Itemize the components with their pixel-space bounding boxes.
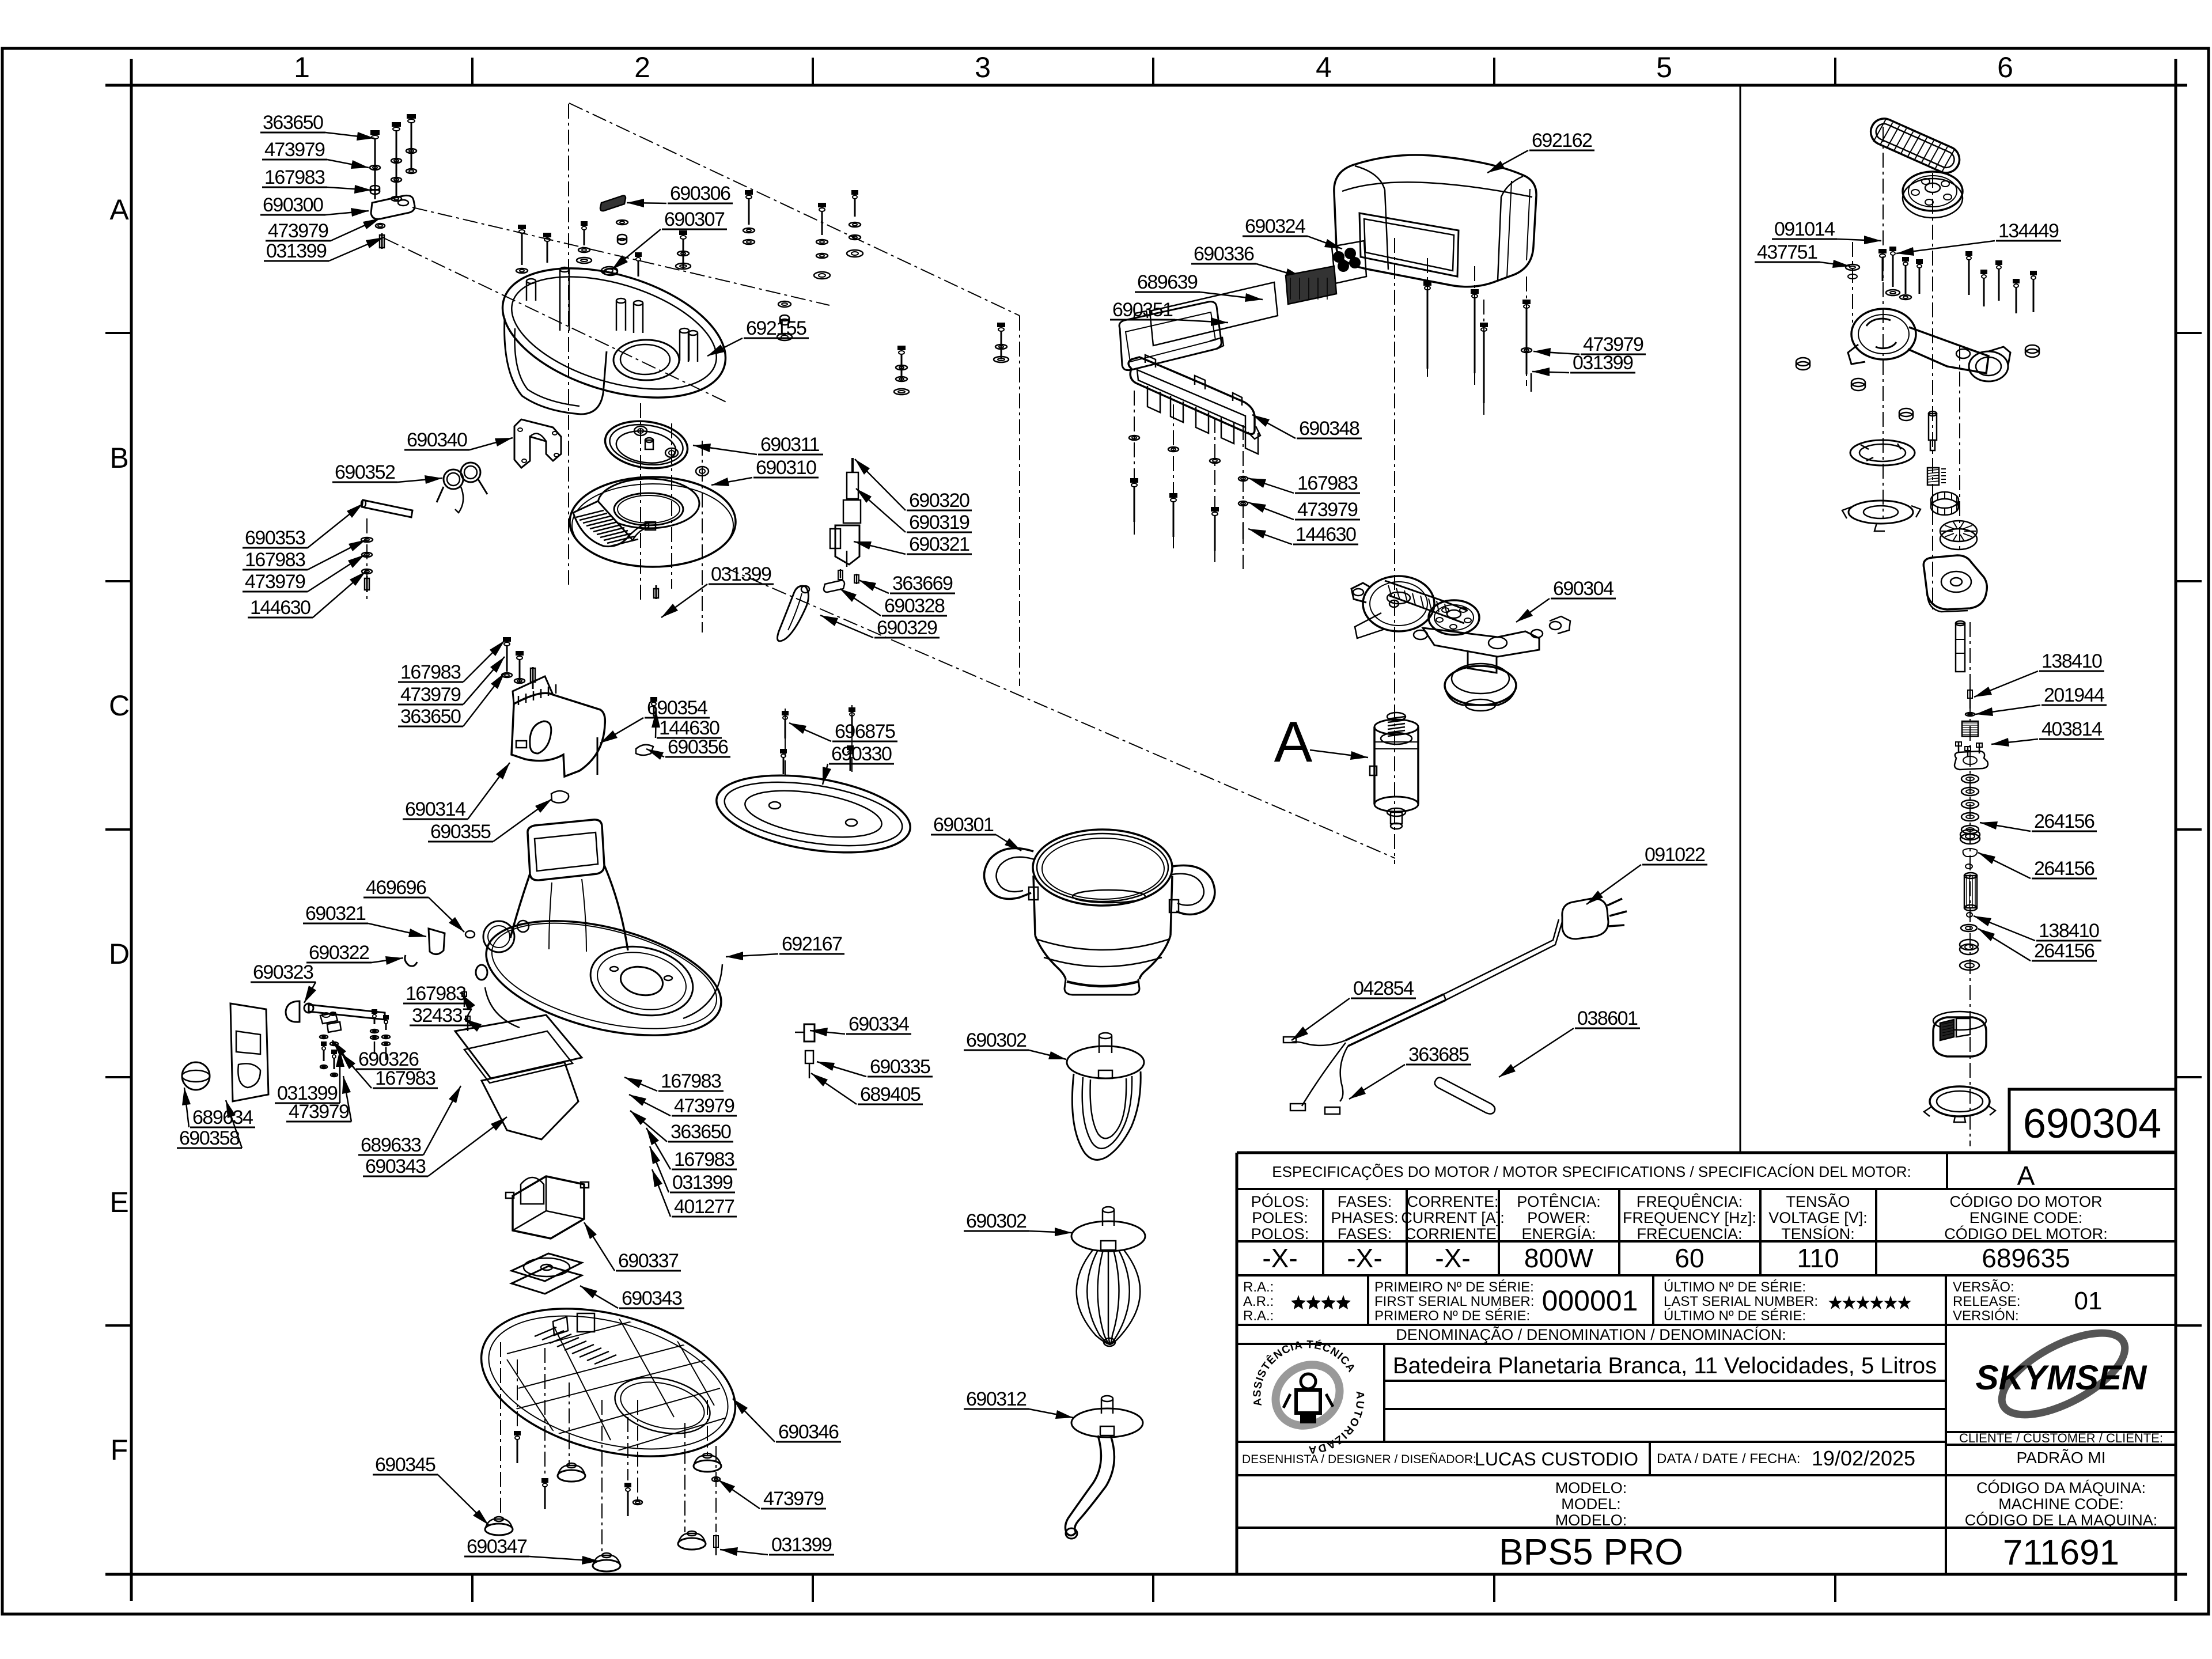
svg-text:ENGINE CODE:: ENGINE CODE:	[1969, 1209, 2083, 1226]
svg-text:F: F	[111, 1434, 128, 1466]
svg-text:SKYMSEN: SKYMSEN	[1976, 1358, 2147, 1397]
svg-text:690322: 690322	[309, 942, 369, 964]
svg-text:091014: 091014	[1774, 218, 1835, 240]
svg-text:473979: 473979	[289, 1101, 349, 1123]
svg-text:FRECUENCIA:: FRECUENCIA:	[1637, 1225, 1742, 1243]
svg-text:690345: 690345	[375, 1454, 435, 1476]
svg-text:01: 01	[2074, 1287, 2103, 1315]
svg-text:POLOS:: POLOS:	[1251, 1225, 1309, 1243]
svg-text:DESENHISTA / DESIGNER / DISEÑA: DESENHISTA / DESIGNER / DISEÑADOR:	[1242, 1452, 1476, 1466]
svg-text:690346: 690346	[778, 1421, 839, 1443]
svg-text:167983: 167983	[674, 1149, 734, 1171]
svg-text:690310: 690310	[756, 457, 816, 479]
svg-text:ESPECIFICAÇÕES DO MOTOR / MOTO: ESPECIFICAÇÕES DO MOTOR / MOTOR SPECIFIC…	[1272, 1163, 1911, 1180]
svg-text:401277: 401277	[674, 1196, 734, 1218]
svg-text:-X-: -X-	[1435, 1243, 1470, 1273]
svg-text:690300: 690300	[263, 194, 323, 216]
svg-text:CURRENT [A]:: CURRENT [A]:	[1401, 1209, 1505, 1226]
svg-text:A: A	[2017, 1161, 2035, 1191]
svg-text:POWER:: POWER:	[1527, 1209, 1590, 1226]
svg-text:138410: 138410	[2039, 920, 2099, 942]
svg-text:690314: 690314	[405, 798, 465, 820]
svg-text:E: E	[109, 1186, 128, 1218]
svg-text:FIRST SERIAL NUMBER:: FIRST SERIAL NUMBER:	[1374, 1294, 1534, 1309]
svg-text:PÓLOS:: PÓLOS:	[1251, 1192, 1309, 1210]
svg-text:690319: 690319	[909, 512, 969, 533]
svg-text:-X-: -X-	[1347, 1243, 1382, 1273]
svg-text:A: A	[109, 194, 129, 226]
svg-text:167983: 167983	[375, 1067, 435, 1089]
svg-text:403814: 403814	[2041, 718, 2102, 740]
svg-text:690343: 690343	[365, 1156, 426, 1177]
svg-text:690351: 690351	[1112, 299, 1173, 321]
svg-text:MODELO:: MODELO:	[1555, 1512, 1627, 1529]
svg-text:ÚLTIMO Nº DE SÉRIE:: ÚLTIMO Nº DE SÉRIE:	[1664, 1308, 1806, 1324]
svg-text:363650: 363650	[400, 706, 461, 728]
svg-text:FREQUENCY [Hz]:: FREQUENCY [Hz]:	[1623, 1209, 1756, 1226]
svg-text:138410: 138410	[2041, 650, 2102, 672]
svg-text:689639: 689639	[1137, 271, 1198, 293]
svg-text:690348: 690348	[1299, 418, 1359, 440]
svg-text:R.A.:: R.A.:	[1243, 1308, 1274, 1324]
svg-text:690304: 690304	[2023, 1101, 2161, 1147]
svg-text:FASES:: FASES:	[1338, 1193, 1392, 1210]
svg-text:690324: 690324	[1245, 215, 1305, 237]
svg-text:60: 60	[1675, 1243, 1704, 1273]
svg-text:469696: 469696	[366, 877, 426, 899]
svg-text:473979: 473979	[674, 1095, 734, 1117]
svg-text:690355: 690355	[430, 821, 491, 843]
svg-text:POTÊNCIA:: POTÊNCIA:	[1517, 1192, 1601, 1210]
svg-text:689634: 689634	[192, 1107, 253, 1128]
svg-text:690311: 690311	[760, 434, 820, 456]
svg-text:690337: 690337	[618, 1250, 679, 1272]
svg-text:473979: 473979	[763, 1488, 824, 1510]
svg-text:473979: 473979	[1297, 499, 1358, 521]
svg-text:690307: 690307	[664, 209, 725, 230]
svg-text:CORRIENTE:: CORRIENTE:	[1405, 1225, 1501, 1243]
svg-text:144630: 144630	[250, 597, 310, 619]
svg-text:473979: 473979	[400, 684, 461, 706]
svg-text:167983: 167983	[264, 166, 325, 188]
svg-text:690301: 690301	[933, 814, 994, 836]
svg-text:PRIMERO Nº DE SÉRIE:: PRIMERO Nº DE SÉRIE:	[1374, 1308, 1530, 1324]
svg-text:690321: 690321	[305, 903, 366, 925]
svg-text:690304: 690304	[1553, 578, 1613, 600]
svg-text:690329: 690329	[877, 617, 937, 639]
svg-text:690320: 690320	[909, 490, 969, 512]
svg-text:MODELO:: MODELO:	[1555, 1479, 1627, 1497]
svg-text:038601: 038601	[1577, 1007, 1638, 1029]
svg-text:363650: 363650	[263, 112, 323, 134]
svg-text:FASES:: FASES:	[1338, 1225, 1392, 1243]
svg-text:324337: 324337	[412, 1005, 472, 1027]
svg-text:PRIMEIRO Nº DE SÉRIE:: PRIMEIRO Nº DE SÉRIE:	[1374, 1279, 1534, 1295]
svg-text:CÓDIGO DEL MOTOR:: CÓDIGO DEL MOTOR:	[1944, 1225, 2108, 1243]
svg-text:264156: 264156	[2034, 940, 2094, 962]
svg-text:CORRENTE:: CORRENTE:	[1407, 1193, 1498, 1210]
svg-text:2: 2	[634, 51, 650, 84]
svg-text:4: 4	[1316, 51, 1332, 84]
svg-text:167983: 167983	[400, 661, 461, 683]
svg-text:5: 5	[1656, 51, 1672, 84]
svg-text:-X-: -X-	[1262, 1243, 1297, 1273]
svg-text:DENOMINAÇÃO / DENOMINATION / D: DENOMINAÇÃO / DENOMINATION / DENOMINACÍO…	[1396, 1325, 1786, 1343]
svg-text:690302: 690302	[966, 1210, 1027, 1232]
svg-text:POLES:: POLES:	[1252, 1209, 1308, 1226]
svg-text:D: D	[109, 938, 130, 970]
svg-text:CLIENTE / CUSTOMER / CLIENTE:: CLIENTE / CUSTOMER / CLIENTE:	[1959, 1431, 2163, 1445]
svg-text:696875: 696875	[835, 721, 895, 743]
svg-text:689405: 689405	[860, 1084, 921, 1105]
svg-text:3: 3	[975, 51, 991, 84]
svg-text:690302: 690302	[966, 1029, 1027, 1051]
svg-text:363650: 363650	[671, 1121, 731, 1143]
svg-text:690306: 690306	[670, 183, 730, 204]
svg-text:690328: 690328	[884, 595, 945, 617]
svg-text:Batedeira Planetaria Branca, 1: Batedeira Planetaria Branca, 11 Velocida…	[1393, 1353, 1937, 1378]
svg-text:690352: 690352	[335, 461, 395, 483]
svg-text:BPS5 PRO: BPS5 PRO	[1499, 1531, 1683, 1573]
svg-text:711691: 711691	[2003, 1533, 2119, 1573]
svg-text:690312: 690312	[966, 1388, 1027, 1410]
svg-text:692167: 692167	[782, 933, 842, 955]
svg-text:031399: 031399	[266, 240, 327, 262]
svg-text:167983: 167983	[661, 1070, 721, 1092]
svg-text:690323: 690323	[253, 961, 313, 983]
svg-text:690340: 690340	[407, 429, 467, 451]
svg-text:264156: 264156	[2034, 858, 2094, 880]
svg-text:RELEASE:: RELEASE:	[1953, 1294, 2020, 1309]
svg-text:MACHINE CODE:: MACHINE CODE:	[1998, 1495, 2124, 1513]
svg-text:TENSÃO: TENSÃO	[1786, 1192, 1850, 1210]
svg-text:473979: 473979	[264, 139, 325, 161]
svg-text:031399: 031399	[711, 563, 771, 585]
svg-text:TENSÍON:: TENSÍON:	[1781, 1225, 1855, 1243]
svg-text:134449: 134449	[1998, 220, 2059, 242]
svg-text:690353: 690353	[245, 527, 305, 549]
svg-text:690356: 690356	[668, 736, 728, 758]
svg-text:473979: 473979	[268, 220, 328, 242]
svg-text:LAST SERIAL NUMBER:: LAST SERIAL NUMBER:	[1664, 1294, 1818, 1309]
svg-text:LUCAS CUSTODIO: LUCAS CUSTODIO	[1475, 1449, 1638, 1469]
svg-text:CÓDIGO DA MÁQUINA:: CÓDIGO DA MÁQUINA:	[1976, 1479, 2146, 1497]
svg-text:110: 110	[1797, 1243, 1839, 1273]
svg-text:B: B	[109, 442, 128, 474]
svg-text:1: 1	[294, 51, 310, 84]
svg-text:692162: 692162	[1532, 130, 1592, 151]
svg-text:689633: 689633	[361, 1134, 421, 1156]
svg-text:000001: 000001	[1542, 1285, 1638, 1317]
svg-text:MODEL:: MODEL:	[1561, 1495, 1621, 1513]
svg-text:19/02/2025: 19/02/2025	[1812, 1446, 1915, 1470]
svg-text:264156: 264156	[2034, 810, 2094, 832]
svg-text:363669: 363669	[892, 573, 953, 594]
svg-text:690347: 690347	[467, 1536, 527, 1558]
svg-text:A: A	[1274, 710, 1313, 774]
svg-text:R.A.:: R.A.:	[1243, 1279, 1274, 1295]
svg-text:363685: 363685	[1408, 1044, 1469, 1066]
svg-text:042854: 042854	[1353, 978, 1414, 999]
svg-text:CÓDIGO DO MOTOR: CÓDIGO DO MOTOR	[1949, 1192, 2102, 1210]
svg-text:091022: 091022	[1645, 844, 1705, 866]
svg-text:437751: 437751	[1757, 241, 1817, 263]
svg-text:167983: 167983	[245, 549, 305, 571]
svg-text:ÚLTIMO Nº DE SÉRIE:: ÚLTIMO Nº DE SÉRIE:	[1664, 1279, 1806, 1295]
svg-text:031399: 031399	[672, 1172, 733, 1194]
svg-text:690335: 690335	[870, 1056, 930, 1078]
svg-text:690330: 690330	[831, 743, 892, 765]
svg-text:CÓDIGO DE LA MAQUINA:: CÓDIGO DE LA MAQUINA:	[1965, 1511, 2158, 1529]
svg-text:800W: 800W	[1524, 1243, 1594, 1273]
svg-text:689635: 689635	[1982, 1243, 2070, 1273]
svg-text:690336: 690336	[1194, 243, 1254, 265]
svg-text:031399: 031399	[771, 1534, 832, 1556]
svg-text:473979: 473979	[245, 571, 305, 593]
svg-text:167983: 167983	[406, 983, 466, 1005]
svg-text:VERSÃO:: VERSÃO:	[1953, 1279, 2014, 1295]
svg-text:A.R.:: A.R.:	[1243, 1294, 1274, 1309]
svg-text:VERSIÓN:: VERSIÓN:	[1953, 1308, 2019, 1324]
svg-text:FREQUÊNCIA:: FREQUÊNCIA:	[1637, 1192, 1743, 1210]
svg-text:DATA / DATE / FECHA:: DATA / DATE / FECHA:	[1657, 1451, 1800, 1467]
svg-text:6: 6	[1997, 51, 2013, 84]
svg-text:690321: 690321	[909, 533, 969, 555]
svg-text:167983: 167983	[1297, 472, 1358, 494]
svg-text:144630: 144630	[1296, 524, 1356, 546]
svg-text:PHASES:: PHASES:	[1331, 1209, 1398, 1226]
svg-text:ENERGÍA:: ENERGÍA:	[1521, 1225, 1596, 1243]
svg-text:690334: 690334	[849, 1013, 909, 1035]
svg-text:PADRÃO MI: PADRÃO MI	[2016, 1449, 2105, 1467]
svg-text:VOLTAGE [V]:: VOLTAGE [V]:	[1768, 1209, 1868, 1226]
svg-text:690343: 690343	[622, 1287, 682, 1309]
svg-text:031399: 031399	[1573, 352, 1633, 374]
svg-text:C: C	[109, 690, 130, 722]
svg-text:690358: 690358	[179, 1127, 240, 1149]
svg-text:201944: 201944	[2044, 684, 2104, 706]
svg-text:692155: 692155	[746, 317, 806, 339]
